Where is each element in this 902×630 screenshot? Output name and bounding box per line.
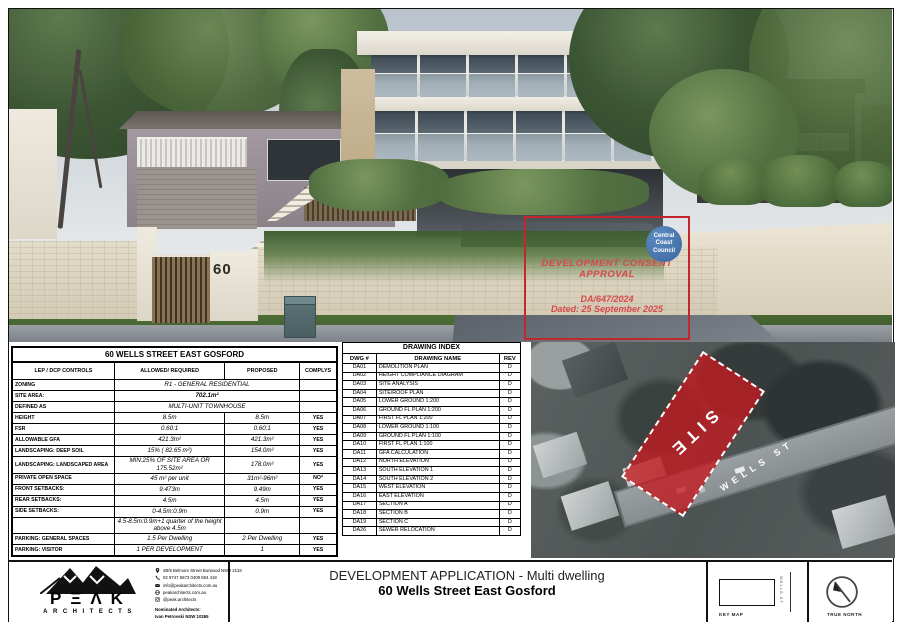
column-header: LEP / DCP CONTROLS: [12, 362, 114, 380]
proposed-value: 0.60:1: [225, 424, 300, 435]
drawing-name: NORTH ELEVATION: [376, 458, 499, 467]
table-header-row: DWG # DRAWING NAME REV: [343, 354, 521, 364]
drawing-revision: D: [499, 432, 520, 441]
logo-subtitle: ARCHITECTS: [39, 609, 137, 615]
drawing-index-row: DA04SITE/ROOF PLAND: [343, 389, 521, 398]
complys-value: YES: [300, 424, 337, 435]
hedge: [835, 161, 892, 207]
garage-structure: [137, 167, 257, 229]
controls-row: REAR SETBACKS:4.5m4.5mYES: [12, 495, 337, 506]
drawing-name: SITE ANALYSIS: [376, 381, 499, 390]
proposed-value: 421.3m²: [225, 435, 300, 446]
drawing-revision: D: [499, 484, 520, 493]
drawing-revision: D: [499, 518, 520, 527]
key-map-street-line: [790, 572, 791, 612]
stamp-da-reference: DA/647/2024: [526, 294, 688, 304]
allowed-value: 0.60:1: [114, 424, 225, 435]
complys-value: YES: [300, 457, 337, 474]
drawing-index-row: DA13SOUTH ELEVATION 1D: [343, 467, 521, 476]
controls-table: 60 WELLS STREET EAST GOSFORD LEP / DCP C…: [11, 346, 338, 557]
controls-row: SIDE SETBACKS:0-4.5m:0.9m0.9mYES: [12, 506, 337, 517]
drawing-name: LOWER GROUND 1:200: [376, 398, 499, 407]
council-logo-line: Council: [646, 248, 682, 256]
drawing-number: DA11: [343, 449, 377, 458]
contact-row: peakarchitects.com.au: [155, 589, 227, 596]
proposed-value: 4.5m: [225, 495, 300, 506]
column-header: COMPLYS: [300, 362, 337, 380]
proposed-value: 2 Per Dwelling: [225, 534, 300, 545]
table-header-row: LEP / DCP CONTROLS ALLOWED/ REQUIRED PRO…: [12, 362, 337, 380]
drawing-name: SECTION C: [376, 518, 499, 527]
complys-value: NO*: [300, 473, 337, 484]
column-header: PROPOSED: [225, 362, 300, 380]
column-header: DRAWING NAME: [376, 354, 499, 364]
proposed-value: [225, 517, 300, 534]
complys-value: YES: [300, 506, 337, 517]
divider: [706, 562, 708, 622]
column-header: REV: [499, 354, 520, 364]
control-label: PARKING: VISITOR: [12, 545, 114, 557]
allowed-value: 9.473m: [114, 484, 225, 495]
controls-row: PARKING: GENERAL SPACES1.5 Per Dwelling2…: [12, 534, 337, 545]
control-label: DEFINED AS: [12, 402, 114, 413]
complys-value: YES: [300, 534, 337, 545]
drawing-revision: D: [499, 406, 520, 415]
contact-row: @peak.architects: [155, 596, 227, 603]
drawing-name: SOUTH ELEVATION 2: [376, 475, 499, 484]
garden-planting: [439, 169, 649, 215]
drawing-revision: D: [499, 510, 520, 519]
contact-phone: 02 9747 5673 0408 654 418: [163, 574, 217, 581]
drawing-number: DA05: [343, 398, 377, 407]
drawing-name: DEMOLITION PLAN: [376, 364, 499, 373]
proposed-value: 9.49m: [225, 484, 300, 495]
controls-row: ALLOWABLE GFA421.3m²421.3m²YES: [12, 435, 337, 446]
allowed-value: 421.3m²: [114, 435, 225, 446]
proposed-value: 154.0m²: [225, 446, 300, 457]
project-type: DEVELOPMENT APPLICATION - Multi dwelling: [228, 568, 706, 583]
project-address: 60 Wells Street East Gosford: [228, 583, 706, 598]
title-block: PΞΛK ARCHITECTS 2B/5 Belmore Street Burw…: [9, 560, 892, 622]
hedge: [699, 159, 769, 205]
complys-value: YES: [300, 484, 337, 495]
controls-row: PRIVATE OPEN SPACE45 m² per unit31m²-96m…: [12, 473, 337, 484]
controls-row: 4.5-8.5m:0.9m+1 quarter of the height ab…: [12, 517, 337, 534]
drawing-name: FIRST FL PLAN 1:100: [376, 441, 499, 450]
drawing-index-row: DA08LOWER GROUND 1:100D: [343, 424, 521, 433]
allowed-value: 8.5m: [114, 413, 225, 424]
drawing-index-row: DA15WEST ELEVATIOND: [343, 484, 521, 493]
drawing-number: DA19: [343, 518, 377, 527]
contact-row: 2B/5 Belmore Street Burwood NSW 2134: [155, 567, 227, 574]
complys-value: YES: [300, 495, 337, 506]
drawing-number: DA13: [343, 467, 377, 476]
drawing-index-row: DA26SEWER RELOCATIOND: [343, 527, 521, 536]
project-title: DEVELOPMENT APPLICATION - Multi dwelling…: [228, 568, 706, 598]
drawing-number: DA17: [343, 501, 377, 510]
controls-row: LANDSCAPING: LANDSCAPED AREAMIN.25% OF S…: [12, 457, 337, 474]
controls-row: ZONINGR1 - GENERAL RESIDENTIAL: [12, 380, 337, 391]
column-header: DWG #: [343, 354, 377, 364]
drawing-name: SEWER RELOCATION: [376, 527, 499, 536]
drawing-revision: D: [499, 381, 520, 390]
drawing-revision: D: [499, 398, 520, 407]
drawing-index-row: DA16EAST ELEVATIOND: [343, 492, 521, 501]
aerial-roof: [832, 495, 895, 549]
drawing-index-row: DA19SECTION CD: [343, 518, 521, 527]
drawing-index-table: DRAWING INDEX DWG # DRAWING NAME REV DA0…: [342, 342, 521, 536]
hedge: [761, 155, 841, 207]
nominated-line: Ivan Petrovski NSW 10265: [155, 614, 227, 620]
control-label: REAR SETBACKS:: [12, 495, 114, 506]
proposed-value: 1: [225, 545, 300, 557]
drawing-index-row: DA02HEIGHT COMPLIANCE DIAGRAMD: [343, 372, 521, 381]
drawing-name: LOWER GROUND 1:100: [376, 424, 499, 433]
aerial-roof-dark: [562, 342, 628, 398]
drawing-revision: D: [499, 424, 520, 433]
controls-row: FRONT SETBACKS:9.473m9.49mYES: [12, 484, 337, 495]
complys-value: [300, 380, 337, 391]
drawing-number: DA10: [343, 441, 377, 450]
stamp-title-2: APPROVAL: [526, 269, 688, 280]
allowed-value: 1.5 Per Dwelling: [114, 534, 225, 545]
drawing-revision: D: [499, 441, 520, 450]
balustrade-fence: [137, 137, 247, 169]
stamp-date: Dated: 25 September 2025: [526, 304, 688, 314]
table-title-row: DRAWING INDEX: [343, 343, 521, 354]
location-pin-icon: [155, 568, 160, 573]
drawing-revision: D: [499, 389, 520, 398]
allowed-value: 4.5-8.5m:0.9m+1 quarter of the height ab…: [114, 517, 225, 534]
drawing-name: EAST ELEVATION: [376, 492, 499, 501]
aerial-roof: [533, 432, 587, 479]
drawing-name: WEST ELEVATION: [376, 484, 499, 493]
control-label: ALLOWABLE GFA: [12, 435, 114, 446]
meter-box: [284, 296, 316, 338]
true-north-label: TRUE NORTH: [827, 612, 862, 617]
drawing-name: SOUTH ELEVATION 1: [376, 467, 499, 476]
drawing-number: DA16: [343, 492, 377, 501]
key-map-label: KEY MAP: [719, 612, 743, 617]
drawing-index-row: DA05LOWER GROUND 1:200D: [343, 398, 521, 407]
control-label: LANDSCAPING: DEEP SOIL: [12, 446, 114, 457]
aerial-roof: [561, 481, 620, 531]
control-label: LANDSCAPING: LANDSCAPED AREA: [12, 457, 114, 474]
controls-row: FSR0.60:10.60:1YES: [12, 424, 337, 435]
contact-details: 2B/5 Belmore Street Burwood NSW 2134 02 …: [155, 567, 227, 620]
allowed-value: 15% ( 82.65 m²): [114, 446, 225, 457]
drawing-name: SECTION B: [376, 510, 499, 519]
drawing-index-row: DA17SECTION AD: [343, 501, 521, 510]
aerial-site-map: SITE WELLS ST: [531, 342, 895, 558]
proposed-value: 31m²-96m²: [225, 473, 300, 484]
drawing-number: DA08: [343, 424, 377, 433]
north-arrow-icon: [824, 574, 860, 610]
control-label: FSR: [12, 424, 114, 435]
controls-table-title: 60 WELLS STREET EAST GOSFORD: [12, 347, 337, 362]
drawing-number: DA15: [343, 484, 377, 493]
allowed-value: 0-4.5m:0.9m: [114, 506, 225, 517]
control-value: R1 - GENERAL RESIDENTIAL: [114, 380, 299, 391]
proposed-value: 178.0m²: [225, 457, 300, 474]
drawing-name: SECTION A: [376, 501, 499, 510]
allowed-value: 45 m² per unit: [114, 473, 225, 484]
proposed-value: 0.9m: [225, 506, 300, 517]
architect-logo: PΞΛK ARCHITECTS: [23, 564, 153, 620]
drawing-revision: D: [499, 415, 520, 424]
drawing-name: GFA CALCULATION: [376, 449, 499, 458]
allowed-value: MIN.25% OF SITE AREA OR 175.52m²: [114, 457, 225, 474]
globe-icon: [155, 590, 160, 595]
complys-value: YES: [300, 545, 337, 557]
drawing-name: SITE/ROOF PLAN: [376, 389, 499, 398]
council-logo: Central Coast Council: [646, 226, 682, 262]
approval-stamp: Central Coast Council DEVELOPMENT CONSEN…: [524, 216, 690, 340]
contact-email: info@peakarchitects.com.au: [163, 582, 217, 589]
allowed-value: 4.5m: [114, 495, 225, 506]
front-fence-brick: [9, 241, 149, 319]
drawing-revision: D: [499, 492, 520, 501]
architectural-render: 60: [9, 9, 892, 342]
drawing-revision: D: [499, 527, 520, 536]
drawing-name: GROUND FL PLAN 1:200: [376, 406, 499, 415]
drawing-revision: D: [499, 501, 520, 510]
drawing-index-title: DRAWING INDEX: [343, 343, 521, 354]
drawing-revision: D: [499, 449, 520, 458]
divider: [807, 562, 809, 622]
controls-row: DEFINED ASMULTI-UNIT TOWNHOUSE: [12, 402, 337, 413]
site-label: SITE: [664, 406, 723, 463]
timber-gate: [152, 254, 210, 323]
drawing-name: GROUND FL PLAN 1:100: [376, 432, 499, 441]
drawing-index-row: DA18SECTION BD: [343, 510, 521, 519]
drawing-revision: D: [499, 475, 520, 484]
drawing-sheet: 60 Central Coast Council DEVELOPMENT CON…: [8, 8, 894, 622]
logo-wordmark: PΞΛK: [44, 590, 132, 607]
garden-planting: [309, 159, 449, 211]
drawing-number: DA07: [343, 415, 377, 424]
drawing-revision: D: [499, 467, 520, 476]
drawing-number: DA26: [343, 527, 377, 536]
control-value: MULTI-UNIT TOWNHOUSE: [114, 402, 299, 413]
drawing-number: DA12: [343, 458, 377, 467]
control-label: PRIVATE OPEN SPACE: [12, 473, 114, 484]
key-map-street-label: WELLS ST: [779, 576, 784, 604]
drawing-number: DA01: [343, 364, 377, 373]
complys-value: YES: [300, 435, 337, 446]
drawing-index-row: DA11GFA CALCULATIOND: [343, 449, 521, 458]
control-label: FRONT SETBACKS:: [12, 484, 114, 495]
complys-value: [300, 391, 337, 402]
control-value: 702.1m²: [114, 391, 299, 402]
contact-row: info@peakarchitects.com.au: [155, 582, 227, 589]
complys-value: YES: [300, 446, 337, 457]
drawing-number: DA02: [343, 372, 377, 381]
drawing-index-row: DA06GROUND FL PLAN 1:200D: [343, 406, 521, 415]
contact-row: 02 9747 5673 0408 654 418: [155, 574, 227, 581]
drawing-number: DA09: [343, 432, 377, 441]
complys-value: YES: [300, 413, 337, 424]
drawing-name: HEIGHT COMPLIANCE DIAGRAM: [376, 372, 499, 381]
column-header: ALLOWED/ REQUIRED: [114, 362, 225, 380]
drawing-index-row: DA10FIRST FL PLAN 1:100D: [343, 441, 521, 450]
drawing-number: DA03: [343, 381, 377, 390]
balcony-railing: [369, 133, 651, 160]
control-label: ZONING: [12, 380, 114, 391]
allowed-value: 1 PER DEVELOPMENT: [114, 545, 225, 557]
drawing-number: DA04: [343, 389, 377, 398]
meter-box-label: [285, 297, 315, 305]
key-map: [719, 579, 775, 606]
drawing-index-row: DA07FIRST FL PLAN 1:200D: [343, 415, 521, 424]
control-label: SIDE SETBACKS:: [12, 506, 114, 517]
proposed-value: 8.5m: [225, 413, 300, 424]
control-label: [12, 517, 114, 534]
drawing-name: FIRST FL PLAN 1:200: [376, 415, 499, 424]
side-wall: [9, 109, 57, 239]
council-logo-line: Central: [646, 233, 682, 241]
control-label: HEIGHT: [12, 413, 114, 424]
complys-value: [300, 517, 337, 534]
control-label: PARKING: GENERAL SPACES: [12, 534, 114, 545]
contact-instagram: @peak.architects: [163, 596, 196, 603]
drawing-revision: D: [499, 458, 520, 467]
control-label: SITE AREA:: [12, 391, 114, 402]
drawing-number: DA18: [343, 510, 377, 519]
phone-icon: [155, 575, 160, 580]
drawing-index-row: DA09GROUND FL PLAN 1:100D: [343, 432, 521, 441]
house-number: 60: [213, 261, 255, 281]
council-logo-line: Coast: [646, 240, 682, 248]
controls-row: PARKING: VISITOR1 PER DEVELOPMENT1YES: [12, 545, 337, 557]
controls-row: LANDSCAPING: DEEP SOIL15% ( 82.65 m²)154…: [12, 446, 337, 457]
complys-value: [300, 402, 337, 413]
controls-row: HEIGHT8.5m8.5mYES: [12, 413, 337, 424]
nominated-architects: Nominated Architects: Ivan Petrovski NSW…: [155, 607, 227, 619]
drawing-revision: D: [499, 372, 520, 381]
instagram-icon: [155, 597, 160, 602]
drawing-number: DA06: [343, 406, 377, 415]
drawing-revision: D: [499, 364, 520, 373]
drawing-index-row: DA12NORTH ELEVATIOND: [343, 458, 521, 467]
drawing-index-row: DA03SITE ANALYSISD: [343, 381, 521, 390]
drawing-index-row: DA01DEMOLITION PLAND: [343, 364, 521, 373]
controls-row: SITE AREA:702.1m²: [12, 391, 337, 402]
contact-website: peakarchitects.com.au: [163, 589, 206, 596]
drawing-number: DA14: [343, 475, 377, 484]
drawing-index-row: DA14SOUTH ELEVATION 2D: [343, 475, 521, 484]
table-title-row: 60 WELLS STREET EAST GOSFORD: [12, 347, 337, 362]
email-icon: [155, 583, 160, 588]
